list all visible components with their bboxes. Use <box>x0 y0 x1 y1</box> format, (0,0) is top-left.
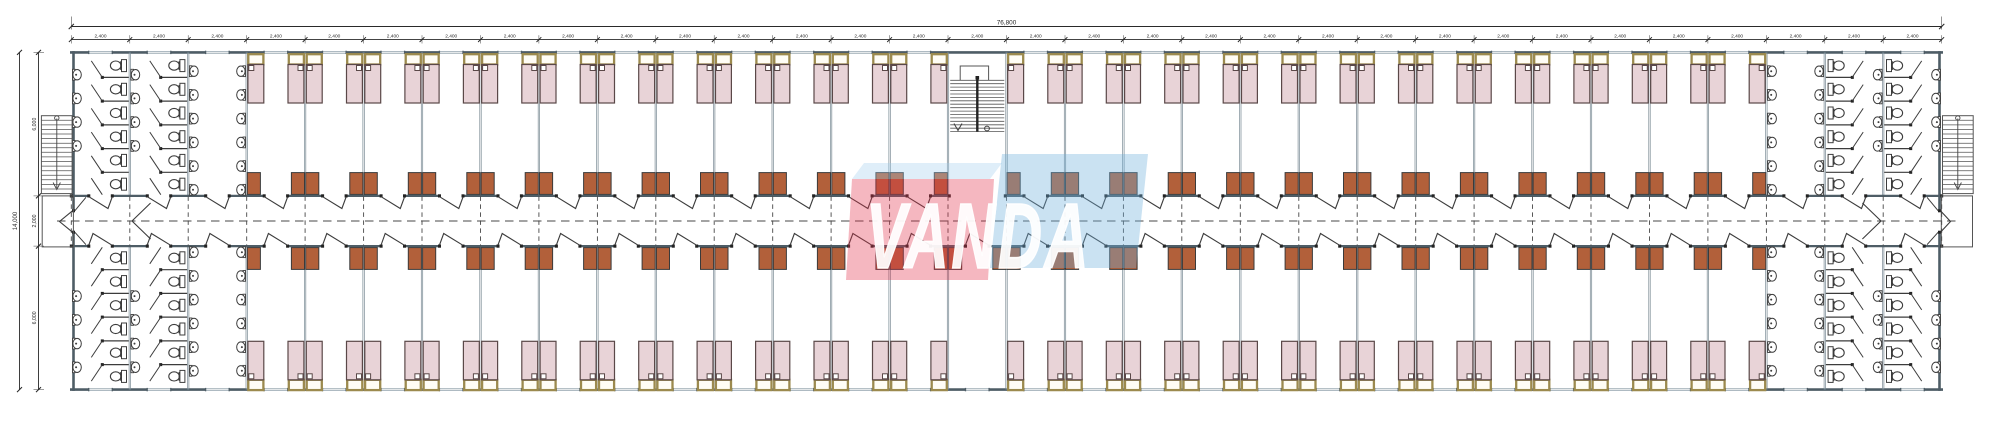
svg-text:2,400: 2,400 <box>1147 33 1159 39</box>
svg-text:2,400: 2,400 <box>1906 33 1918 39</box>
svg-text:2,400: 2,400 <box>1380 33 1392 39</box>
svg-text:2,400: 2,400 <box>737 33 749 39</box>
svg-text:2,400: 2,400 <box>504 33 516 39</box>
svg-text:2,400: 2,400 <box>1790 33 1802 39</box>
svg-text:2,400: 2,400 <box>1205 33 1217 39</box>
svg-text:2,400: 2,400 <box>1614 33 1626 39</box>
svg-text:2,400: 2,400 <box>1322 33 1334 39</box>
svg-text:2,400: 2,400 <box>1497 33 1509 39</box>
svg-text:6,000: 6,000 <box>32 311 38 324</box>
svg-text:2,400: 2,400 <box>1556 33 1568 39</box>
svg-text:2,400: 2,400 <box>562 33 574 39</box>
svg-text:2,400: 2,400 <box>1263 33 1275 39</box>
svg-text:2,400: 2,400 <box>621 33 633 39</box>
svg-text:2,000: 2,000 <box>32 214 38 227</box>
svg-text:2,400: 2,400 <box>679 33 691 39</box>
svg-text:2,400: 2,400 <box>854 33 866 39</box>
svg-text:2,400: 2,400 <box>1439 33 1451 39</box>
svg-text:2,400: 2,400 <box>1030 33 1042 39</box>
svg-text:6,000: 6,000 <box>32 118 38 131</box>
svg-text:2,400: 2,400 <box>270 33 282 39</box>
svg-text:2,400: 2,400 <box>1848 33 1860 39</box>
svg-text:2,400: 2,400 <box>211 33 223 39</box>
svg-text:76,800: 76,800 <box>997 20 1017 27</box>
svg-text:2,400: 2,400 <box>387 33 399 39</box>
svg-text:2,400: 2,400 <box>94 33 106 39</box>
svg-text:2,400: 2,400 <box>153 33 165 39</box>
svg-text:2,400: 2,400 <box>971 33 983 39</box>
svg-text:2,400: 2,400 <box>328 33 340 39</box>
svg-text:14,000: 14,000 <box>13 211 19 230</box>
svg-text:VANDA: VANDA <box>866 184 1091 288</box>
svg-text:2,400: 2,400 <box>1731 33 1743 39</box>
svg-text:2,400: 2,400 <box>913 33 925 39</box>
svg-text:2,400: 2,400 <box>1088 33 1100 39</box>
svg-text:2,400: 2,400 <box>1673 33 1685 39</box>
svg-text:2,400: 2,400 <box>796 33 808 39</box>
svg-text:2,400: 2,400 <box>445 33 457 39</box>
